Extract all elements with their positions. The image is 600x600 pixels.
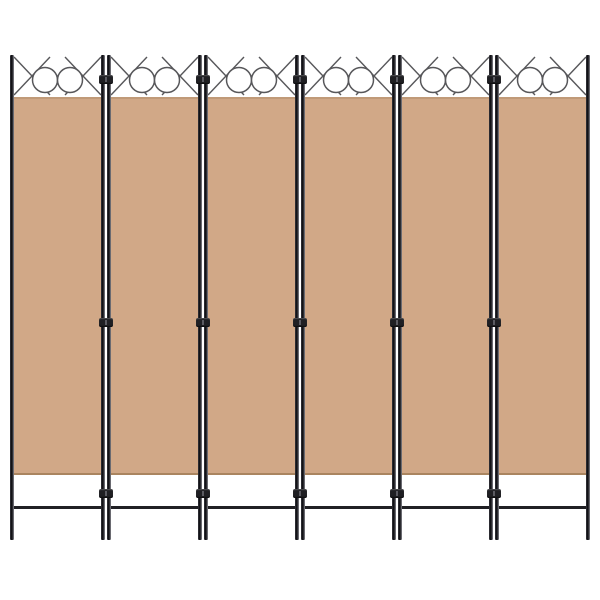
frame-post-right-icon [586,55,590,540]
hinge-collar [99,489,113,498]
divider-panel [107,55,202,540]
hinge-collar [99,75,113,84]
foot-bar [109,506,200,509]
hinge-collar [99,318,113,327]
fabric-screen [497,97,588,475]
foot-bar [497,506,588,509]
hinge-collar [487,489,501,498]
fabric-screen [206,97,297,475]
hinge-collar [196,75,210,84]
divider-panel [204,55,299,540]
foot-bar [12,506,103,509]
scroll-ornament-icon [10,55,105,97]
foot-bar [400,506,491,509]
foot-bar [303,506,394,509]
frame-post-left-icon [10,55,14,540]
divider-panel [495,55,590,540]
hinge-collar [487,75,501,84]
frame-post-left-icon [398,55,402,540]
fabric-screen [12,97,103,475]
fabric-screen [109,97,200,475]
frame-post-right-icon [295,55,299,540]
scroll-ornament-icon [301,55,396,97]
frame-post-right-icon [392,55,396,540]
hinge-collar [390,75,404,84]
hinge-collar [487,318,501,327]
room-divider [10,55,590,540]
hinge-collar [293,318,307,327]
frame-post-left-icon [107,55,111,540]
hinge-collar [196,489,210,498]
hinge-collar [390,318,404,327]
frame-post-right-icon [489,55,493,540]
scroll-ornament-icon [398,55,493,97]
frame-post-left-icon [204,55,208,540]
frame-post-right-icon [198,55,202,540]
hinge-collar [293,489,307,498]
scroll-ornament-icon [204,55,299,97]
divider-panel [301,55,396,540]
hinge-collar [390,489,404,498]
divider-panel [398,55,493,540]
divider-panel [10,55,105,540]
hinge-collar [293,75,307,84]
frame-post-left-icon [495,55,499,540]
scroll-ornament-icon [107,55,202,97]
room-divider-product-photo [0,0,600,600]
frame-post-right-icon [101,55,105,540]
hinge-collar [196,318,210,327]
foot-bar [206,506,297,509]
frame-post-left-icon [301,55,305,540]
fabric-screen [400,97,491,475]
scroll-ornament-icon [495,55,590,97]
fabric-screen [303,97,394,475]
